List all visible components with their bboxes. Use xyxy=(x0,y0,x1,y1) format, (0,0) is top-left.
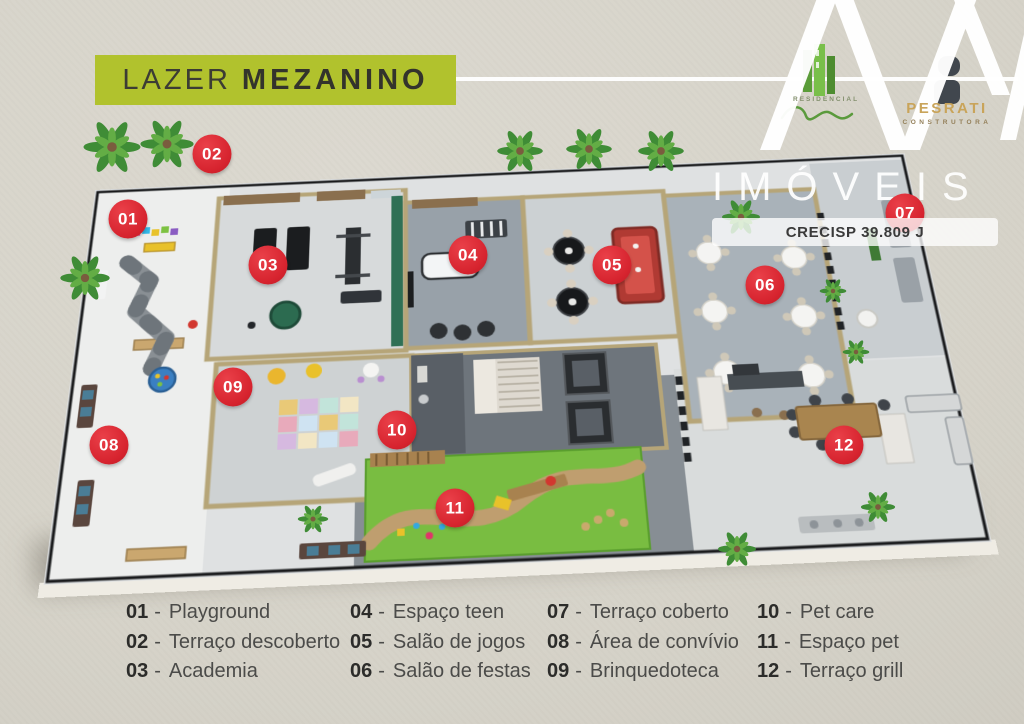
crecisp-badge: CRECISP 39.809 J xyxy=(712,218,998,246)
legend-item-12: 12-Terraço grill xyxy=(757,657,903,687)
salao-de-jogos-room xyxy=(523,191,680,343)
legend-item-09: 09-Brinquedoteca xyxy=(547,657,739,687)
legend-item-02: 02-Terraço descoberto xyxy=(126,628,340,658)
legend-item-08: 08-Área de convívio xyxy=(547,628,739,658)
legend-item-10: 10-Pet care xyxy=(757,598,903,628)
legend-item-05: 05-Salão de jogos xyxy=(350,628,531,658)
page: LAZER MEZANINO xyxy=(0,0,1024,724)
legend-column-3: 07-Terraço coberto08-Área de convívio09-… xyxy=(547,598,739,687)
builder-name: PESRATI xyxy=(884,100,1010,117)
residencial-logo xyxy=(782,44,852,119)
imoveis-watermark: IMÓVEIS xyxy=(712,165,1024,210)
legend: 01-Playground02-Terraço descoberto03-Aca… xyxy=(0,598,1024,698)
academia-room xyxy=(207,188,406,360)
page-title: LAZER MEZANINO xyxy=(95,55,456,105)
legend-column-1: 01-Playground02-Terraço descoberto03-Aca… xyxy=(126,598,340,687)
marker-02: 02 xyxy=(193,135,232,174)
core-stairs-elevators xyxy=(411,344,667,459)
residencial-label: RESIDENCIAL xyxy=(793,96,859,103)
espaco-teen-room xyxy=(405,195,530,349)
builder-label: CONSTRUTORA xyxy=(884,119,1010,126)
legend-item-03: 03-Academia xyxy=(126,657,340,687)
espaco-pet-area xyxy=(365,441,650,562)
title-rule-line xyxy=(452,77,1018,81)
legend-column-2: 04-Espaço teen05-Salão de jogos06-Salão … xyxy=(350,598,531,687)
title-regular: LAZER xyxy=(122,64,230,97)
legend-item-04: 04-Espaço teen xyxy=(350,598,531,628)
residencial-script xyxy=(782,107,852,119)
title-bold: MEZANINO xyxy=(242,64,429,97)
legend-item-07: 07-Terraço coberto xyxy=(547,598,739,628)
stripe-watermark xyxy=(760,0,1024,150)
legend-item-01: 01-Playground xyxy=(126,598,340,628)
legend-item-06: 06-Salão de festas xyxy=(350,657,531,687)
legend-item-11: 11-Espaço pet xyxy=(757,628,903,658)
legend-column-4: 10-Pet care11-Espaço pet12-Terraço grill xyxy=(757,598,903,687)
